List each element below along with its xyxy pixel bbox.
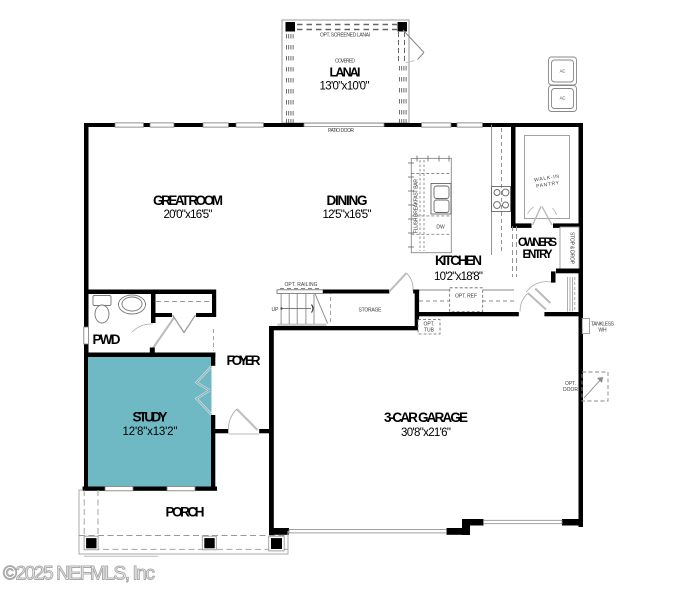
svg-text:OPT. REF: OPT. REF bbox=[455, 294, 477, 300]
svg-text:AC: AC bbox=[560, 96, 566, 101]
svg-text:DOOR: DOOR bbox=[563, 387, 578, 393]
svg-text:PORCH: PORCH bbox=[166, 505, 205, 520]
svg-text:3-CAR GARAGE: 3-CAR GARAGE bbox=[384, 410, 468, 425]
svg-text:PWD: PWD bbox=[93, 332, 121, 347]
svg-text:20'0"x16'5": 20'0"x16'5" bbox=[164, 209, 213, 221]
svg-text:30'8"x21'6": 30'8"x21'6" bbox=[401, 427, 451, 439]
svg-text:12'5"x16'5": 12'5"x16'5" bbox=[323, 209, 372, 221]
svg-text:OPT. SCREENED LANAI: OPT. SCREENED LANAI bbox=[320, 33, 370, 39]
svg-text:WH: WH bbox=[598, 328, 607, 334]
svg-text:FLUSH BREAKFAST BAR: FLUSH BREAKFAST BAR bbox=[414, 179, 420, 233]
svg-text:AC: AC bbox=[560, 69, 566, 74]
svg-text:DINING: DINING bbox=[327, 193, 368, 208]
svg-text:PATIO DOOR: PATIO DOOR bbox=[328, 128, 354, 134]
svg-text:UP: UP bbox=[272, 307, 280, 313]
svg-text:©2025 NEFMLS, Inc: ©2025 NEFMLS, Inc bbox=[3, 564, 155, 585]
svg-text:GREAT ROOM: GREAT ROOM bbox=[153, 193, 223, 208]
svg-text:KITCHEN: KITCHEN bbox=[435, 253, 482, 268]
svg-text:13'0"x10'0": 13'0"x10'0" bbox=[320, 81, 370, 93]
svg-text:STORAGE: STORAGE bbox=[359, 308, 383, 314]
svg-text:TUB: TUB bbox=[424, 328, 435, 334]
svg-text:10'2"x18'8": 10'2"x18'8" bbox=[434, 271, 483, 283]
svg-text:FOYER: FOYER bbox=[227, 353, 261, 368]
svg-text:12'8"x13'2": 12'8"x13'2" bbox=[123, 426, 178, 438]
svg-text:STUDY: STUDY bbox=[133, 410, 168, 425]
svg-text:STOP & DROP: STOP & DROP bbox=[569, 232, 575, 265]
svg-text:OWNER'S: OWNER'S bbox=[518, 237, 557, 249]
svg-text:DW: DW bbox=[436, 225, 445, 231]
svg-text:COVERED: COVERED bbox=[335, 59, 355, 65]
svg-text:LANAI: LANAI bbox=[330, 66, 361, 80]
svg-text:ENTRY: ENTRY bbox=[523, 249, 553, 261]
svg-text:OPT. RAILING: OPT. RAILING bbox=[285, 282, 318, 288]
